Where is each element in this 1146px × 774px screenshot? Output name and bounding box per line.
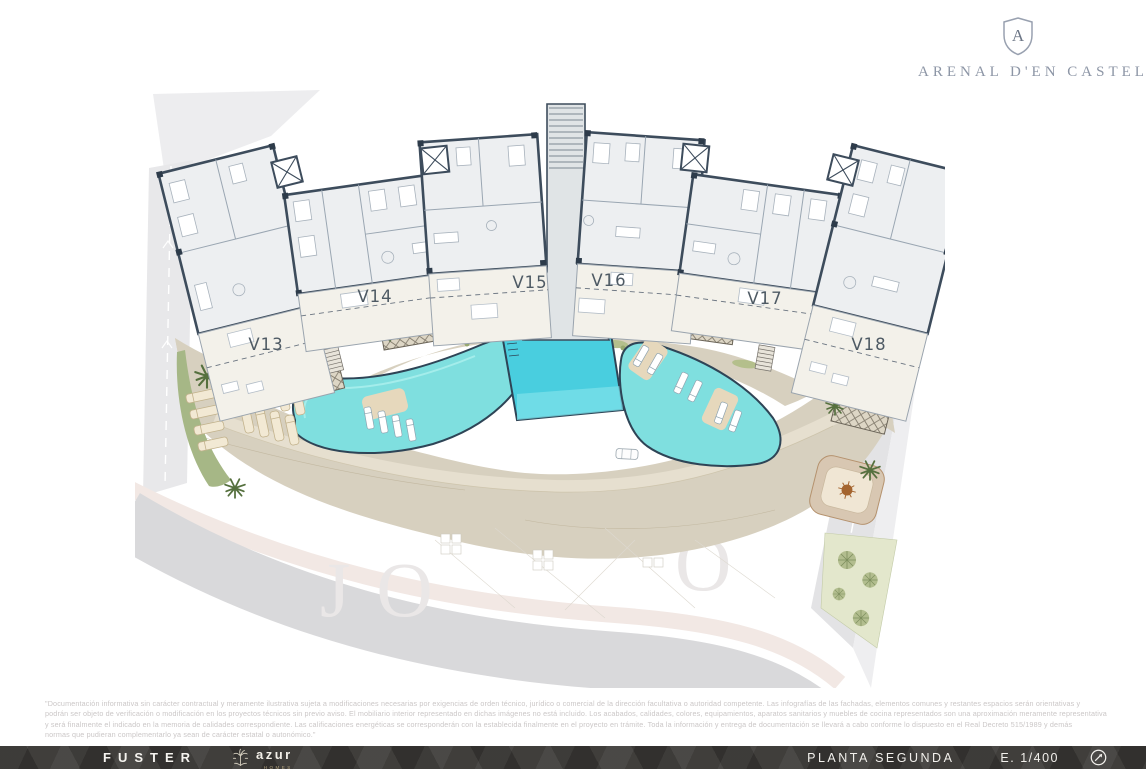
north-arrow-icon (1089, 748, 1108, 767)
site-plan: JO O (135, 88, 945, 688)
palm-emblem-icon (231, 748, 250, 767)
brand-monogram: A (1012, 26, 1025, 45)
shield-monogram-icon: A (1001, 16, 1035, 56)
disclaimer-line: normas que pudieran complementarlo ya se… (45, 730, 1108, 740)
scale-label: E. 1/400 (1000, 751, 1059, 765)
developer-logo: FUSTER (103, 750, 197, 765)
brand-block: A ARENAL D'EN CASTELL (918, 16, 1118, 81)
agency-logo: azur HOMES (231, 746, 293, 770)
brand-name: ARENAL D'EN CASTELL (918, 64, 1118, 81)
disclaimer-line: y será finalmente el indicado en la memo… (45, 720, 1108, 730)
unit-label-v13: V13 (248, 335, 283, 354)
brochure-page: A ARENAL D'EN CASTELL (0, 0, 1146, 774)
unit-label-v15: V15 (512, 273, 547, 292)
svg-text:JO: JO (320, 546, 459, 633)
disclaimer-line: "Documentación informativa sin carácter … (45, 699, 1108, 709)
unit-label-v14: V14 (357, 287, 392, 306)
agency-subtitle: HOMES (256, 765, 293, 770)
garden-triangle (821, 533, 897, 648)
footer-bar: FUSTER azur HOMES PLANTA SEGUNDA E. 1/40… (0, 746, 1146, 769)
floor-label: PLANTA SEGUNDA (807, 751, 954, 765)
disclaimer-line: podrán ser objeto de verificación o modi… (45, 709, 1108, 719)
unit-label-v17: V17 (747, 289, 782, 308)
agency-name: azur (256, 747, 293, 762)
legal-disclaimer: "Documentación informativa sin carácter … (45, 699, 1108, 741)
unit-label-v18: V18 (851, 335, 886, 354)
unit-label-v16: V16 (591, 271, 626, 290)
car (616, 448, 638, 459)
